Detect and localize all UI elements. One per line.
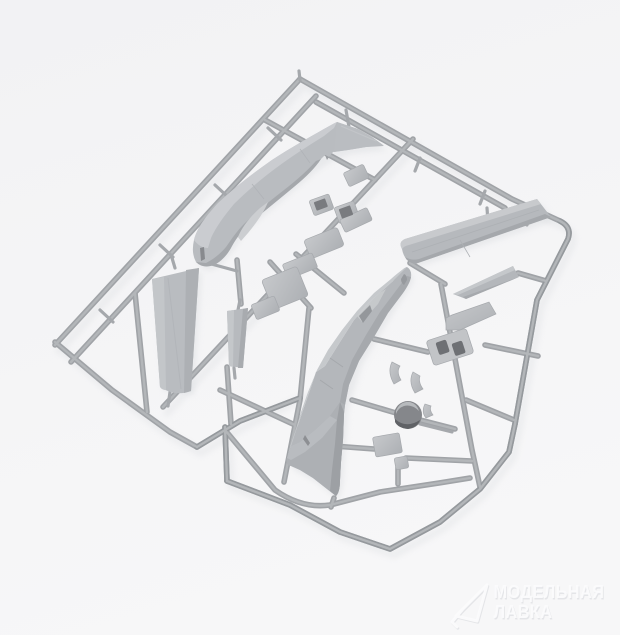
svg-text:ЛАВКА: ЛАВКА [494,601,553,622]
svg-text:МОДЕЛЬНАЯ: МОДЕЛЬНАЯ [494,581,605,602]
